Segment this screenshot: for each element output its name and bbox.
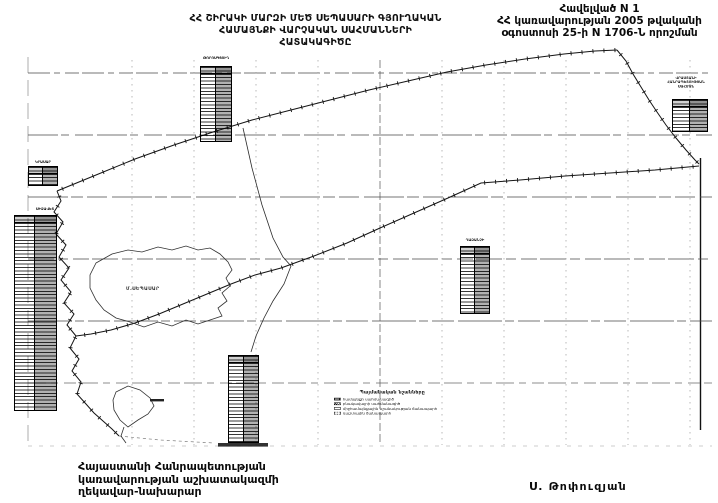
table-divider xyxy=(34,216,35,410)
table-label-west-tall: ՍԻԶԱՎԵՏ xyxy=(18,207,72,211)
signatory-title-line: ղեկավար-նախարար xyxy=(78,486,338,499)
coordinate-table-west-tall xyxy=(14,215,57,411)
settlement-boundary-symbol xyxy=(334,402,341,405)
border-note: ՎՐԱՍՏԱՆԻ ՀԱՆՐԱՊԵՏՈՒԹՅԱՆ ՍԱՀՄԱՆ xyxy=(659,76,713,88)
map-title-line: ՀԱՏԱԿԱԳԻԾԸ xyxy=(178,37,453,49)
annex-decree-line: օգոստոսի 25-ի N 1706-Ն որոշման xyxy=(483,28,716,40)
table-label-west-small: ԿՐԱՍԱՐ xyxy=(21,160,66,164)
hamlet-tail xyxy=(121,427,126,443)
legend-title: Պայմանական նշանները xyxy=(333,390,452,395)
border-note-line: ՍԱՀՄԱՆ xyxy=(659,84,713,88)
road-symbol xyxy=(334,407,341,410)
map-title-line: ՀՀ ՇԻՐԱԿԻ ՄԱՐԶԻ ՄԵԾ ՍԵՊԱՍԱՐԻ ԳՅՈՒՂԱԿԱՆ xyxy=(178,13,453,25)
table-divider xyxy=(215,67,216,141)
table-label-east: ՂԱԶԱՆՉԻ xyxy=(453,238,498,242)
settlement-outline xyxy=(90,246,232,327)
boundary-tick-marks xyxy=(84,164,693,336)
tiny-map-annotation xyxy=(150,399,164,401)
legend-row: դաշտային ճանապարհ xyxy=(333,411,452,416)
map-title-line: ՀԱՄԱՅՆՔԻ ՎԱՐՉԱԿԱՆ ՍԱՀՄԱՆՆԵՐԻ xyxy=(178,25,453,37)
annex-decree-line: ՀՀ կառավարության 2005 թվականի xyxy=(483,16,716,28)
boundary-south-faint xyxy=(119,436,214,443)
table-divider xyxy=(243,356,244,442)
scanned-map-page: Մ.ՍԵՊԱՍԱՐ ԹՈՐՈՍԳՅՈՒՂ ԿՐԱՍԱՐ ՍԻԶԱՎԵՏ ՂԱԶԱ… xyxy=(0,0,718,503)
signatory-title-line: Հայաստանի Հանրապետության xyxy=(78,461,338,474)
field-road-symbol xyxy=(334,412,341,415)
legend-item-label: դաշտային ճանապարհ xyxy=(343,411,391,416)
hamlet-outline xyxy=(113,386,154,427)
coordinate-table-northeast xyxy=(672,99,708,132)
signature-name: Ս. Թոփուզյան xyxy=(529,480,689,493)
table-header xyxy=(15,216,56,223)
settlement-label: Մ.ՍԵՊԱՍԱՐ xyxy=(126,286,160,292)
table-divider xyxy=(689,100,690,131)
boundary-north xyxy=(57,50,617,191)
coordinate-table-east xyxy=(460,246,490,314)
boundary-tick-marks xyxy=(55,196,117,434)
coordinate-table-west-small xyxy=(28,166,58,186)
scan-smudge-bar xyxy=(218,443,268,447)
boundary-tick-marks xyxy=(62,48,615,191)
table-label-north: ԹՈՐՈՍԳՅՈՒՂ xyxy=(194,56,239,60)
signatory-title-block: Հայաստանի Հանրապետության կառավարության ա… xyxy=(78,461,338,499)
table-divider xyxy=(42,167,43,185)
community-boundary-symbol xyxy=(334,398,341,401)
annex-reference: Հավելված N 1 ՀՀ կառավարության 2005 թվակա… xyxy=(483,4,716,39)
coordinate-table-center xyxy=(228,355,259,443)
table-header xyxy=(673,100,707,107)
coordinate-table-north xyxy=(200,66,232,142)
road-line xyxy=(243,128,291,352)
grid-horizontal-lines xyxy=(28,73,712,383)
map-title: ՀՀ ՇԻՐԱԿԻ ՄԱՐԶԻ ՄԵԾ ՍԵՊԱՍԱՐԻ ԳՅՈՒՂԱԿԱՆ Հ… xyxy=(178,13,453,49)
map-legend: Պայմանական նշանները համայնքի սահմանագիծ … xyxy=(333,390,451,438)
table-divider xyxy=(474,247,475,313)
